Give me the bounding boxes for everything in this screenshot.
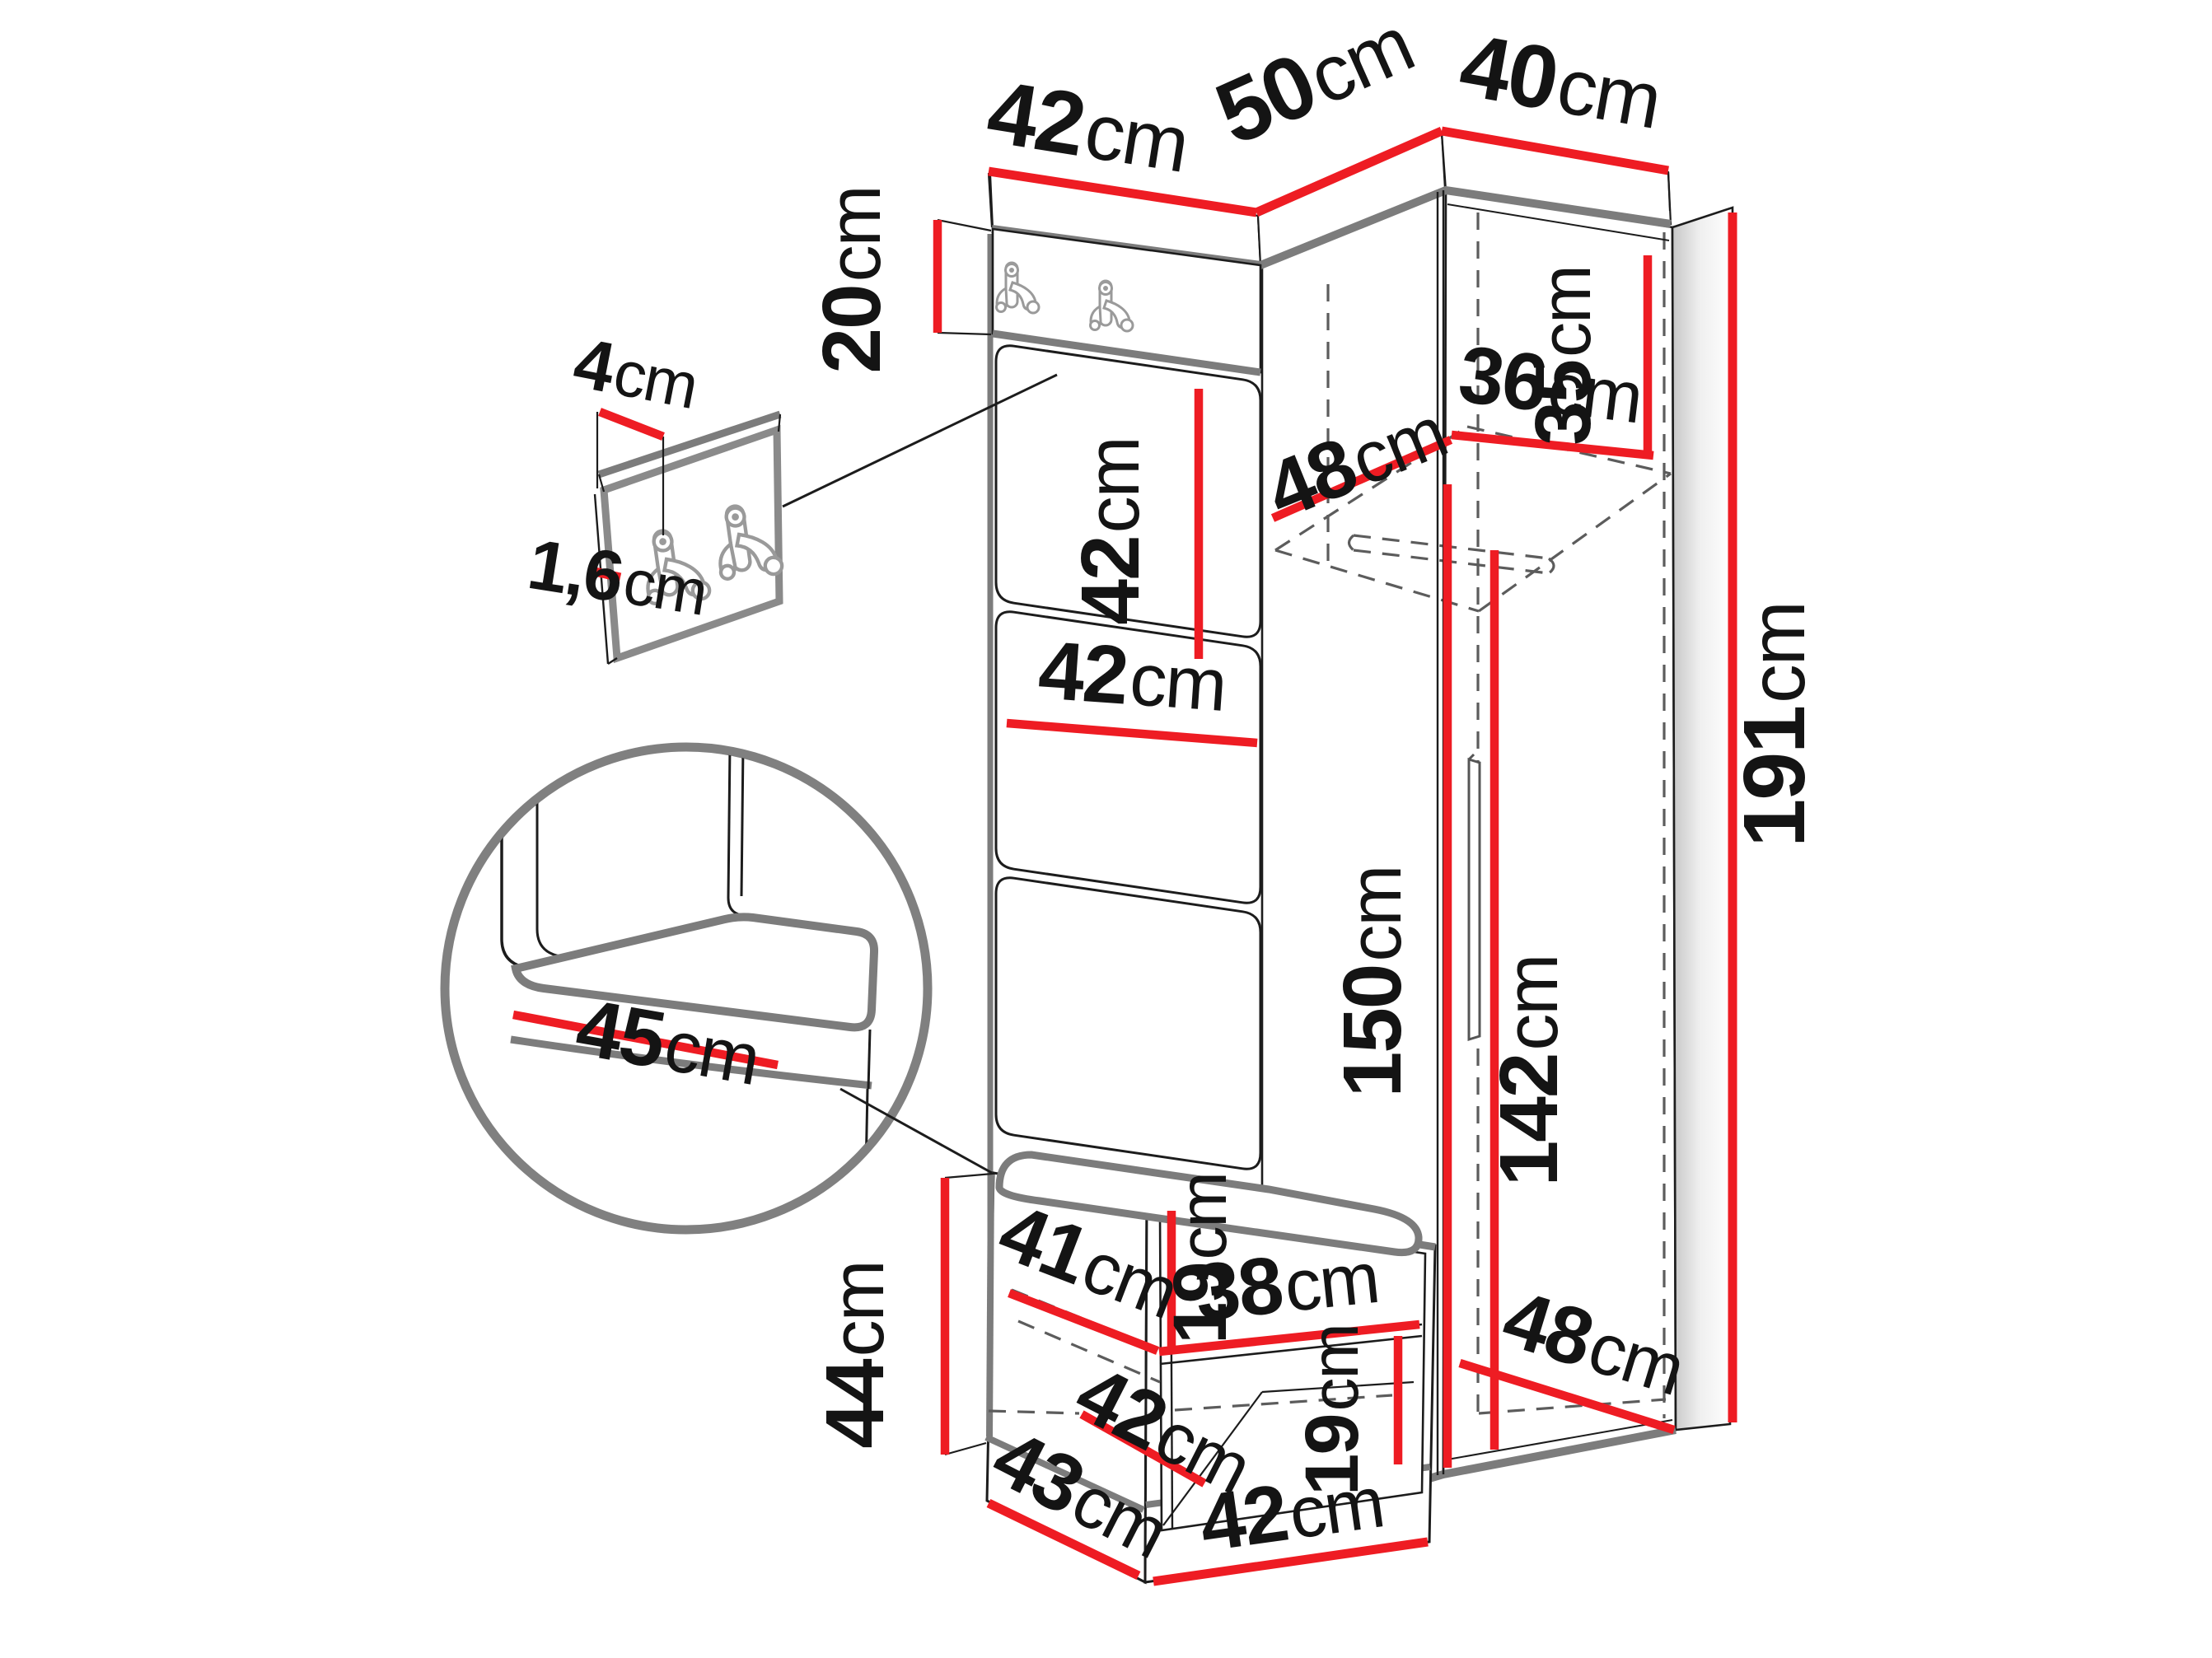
- door-handle: [1469, 754, 1480, 1039]
- dim-label-35: 35cm: [1519, 266, 1607, 445]
- dim-label-panel-42-v: 42cm: [1064, 437, 1157, 624]
- dim-ext-44-bottom: [945, 1443, 986, 1455]
- dim-label-142: 142cm: [1483, 955, 1575, 1187]
- handle-bar: [1469, 759, 1480, 1039]
- dim-ext-20-bottom: [938, 333, 991, 334]
- dim-label-20: 20cm: [806, 186, 898, 373]
- upholstered-panel-3: [996, 878, 1260, 1169]
- furniture-dimension-diagram: 42cm 50cm 40cm 20cm 42cm 42cm 48cm 36cm …: [0, 0, 2212, 1658]
- dim-label-191: 191cm: [1726, 602, 1823, 848]
- dim-ext-20-top: [938, 220, 991, 231]
- dim-label-top-40: 40cm: [1453, 14, 1668, 147]
- dim-label-44: 44cm: [809, 1261, 901, 1448]
- backrest-seam-inner: [741, 745, 743, 896]
- dim-label-150: 150cm: [1326, 866, 1419, 1098]
- dim-ext-44-top: [945, 1174, 993, 1178]
- dim-label-4: 4cm: [568, 323, 704, 424]
- wardrobe-right-side-face: [1672, 208, 1733, 1430]
- bench-left-edge: [989, 1175, 991, 1436]
- detail-circle: [445, 745, 928, 1230]
- dim-label-top-50: 50cm: [1202, 0, 1426, 164]
- bench-corner-edge-zoom: [868, 1030, 870, 1089]
